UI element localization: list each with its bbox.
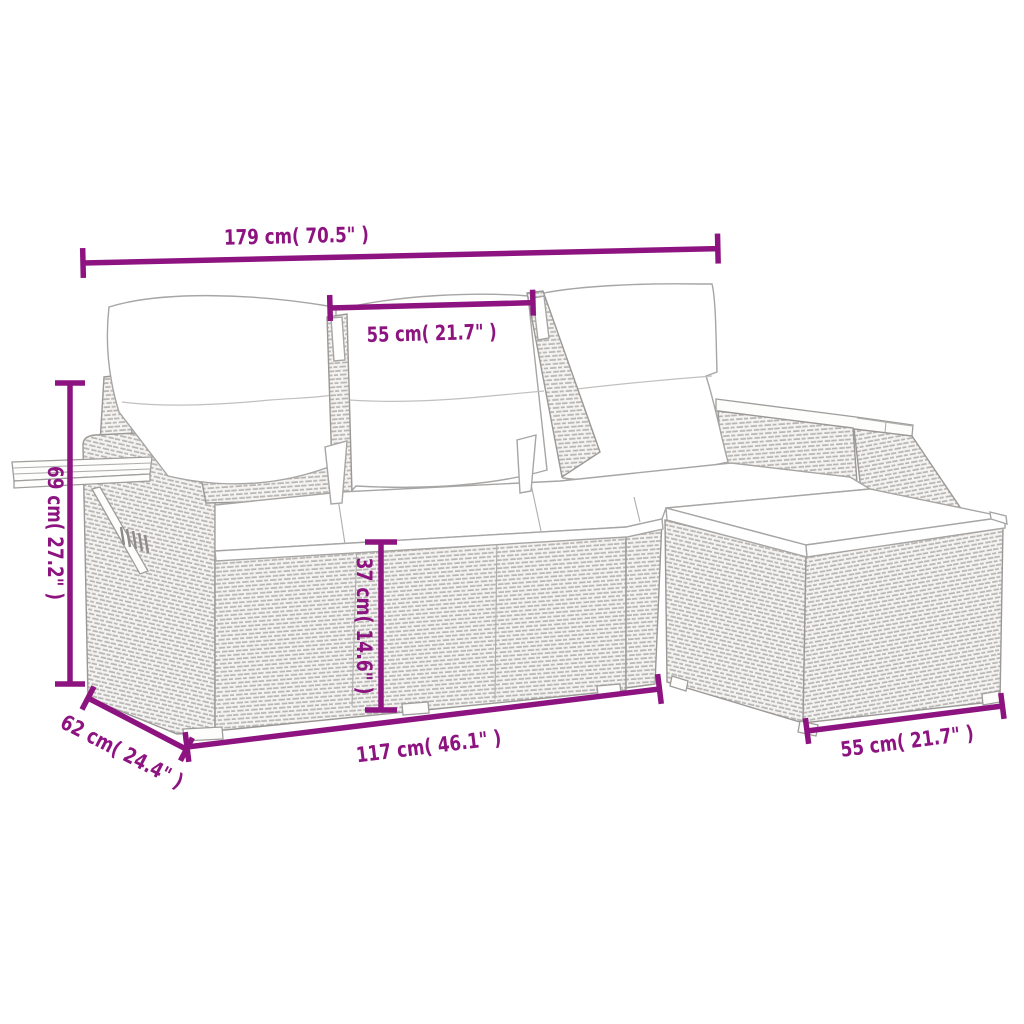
dimension-overall-width-label: 179 cm( 70.5" ) <box>224 223 370 250</box>
dimension-footstool-width-label: 55 cm( 21.7" ) <box>839 721 975 762</box>
cushion-strap-left <box>331 317 345 361</box>
diagram-canvas: 179 cm( 70.5" ) 55 cm( 21.7" ) 69 cm( 27… <box>0 0 1024 1024</box>
dimension-backrest-height-label: 69 cm( 27.2" ) <box>43 466 67 600</box>
sofa-right-side-face <box>626 519 662 688</box>
dimension-overall-width: 179 cm( 70.5" ) <box>82 215 718 278</box>
dimension-front-length-label: 117 cm( 46.1" ) <box>355 726 503 768</box>
footstool-right-face <box>803 527 1003 723</box>
back-cushions <box>107 284 728 502</box>
dimension-overall-width-line <box>83 234 719 278</box>
dimension-backrest-height: 69 cm( 27.2" ) <box>43 383 85 684</box>
product-dimension-image: 179 cm( 70.5" ) 55 cm( 21.7" ) 69 cm( 27… <box>0 0 1024 1024</box>
footstool <box>665 489 1007 723</box>
dimension-back-cushion-width-label: 55 cm( 21.7" ) <box>366 320 497 347</box>
sofa-illustration <box>12 284 1007 741</box>
sofa-foot-middle <box>402 702 429 715</box>
dimension-seat-height-label: 37 cm( 14.6" ) <box>352 558 376 695</box>
footstool-foot-right <box>982 691 1000 705</box>
